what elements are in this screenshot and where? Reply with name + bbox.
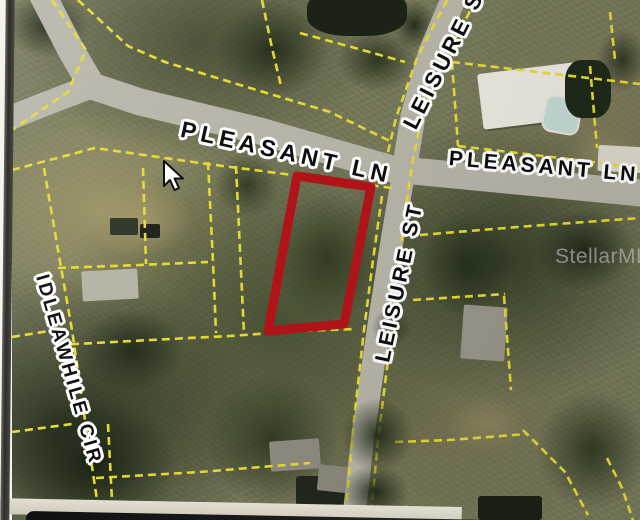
highlighted-parcel-outline bbox=[268, 176, 371, 331]
mouse-arrow-cursor-icon bbox=[162, 160, 188, 194]
screen-photo-frame: PLEASANT LN PLEASANT LN LEISURE ST LEISU… bbox=[0, 0, 640, 520]
map-line-layers bbox=[12, 0, 640, 520]
road-west-branch bbox=[12, 86, 92, 120]
map-viewport[interactable]: PLEASANT LN PLEASANT LN LEISURE ST LEISU… bbox=[12, 0, 640, 520]
mls-watermark: StellarMLS bbox=[555, 245, 640, 269]
road-layer bbox=[12, 0, 640, 520]
